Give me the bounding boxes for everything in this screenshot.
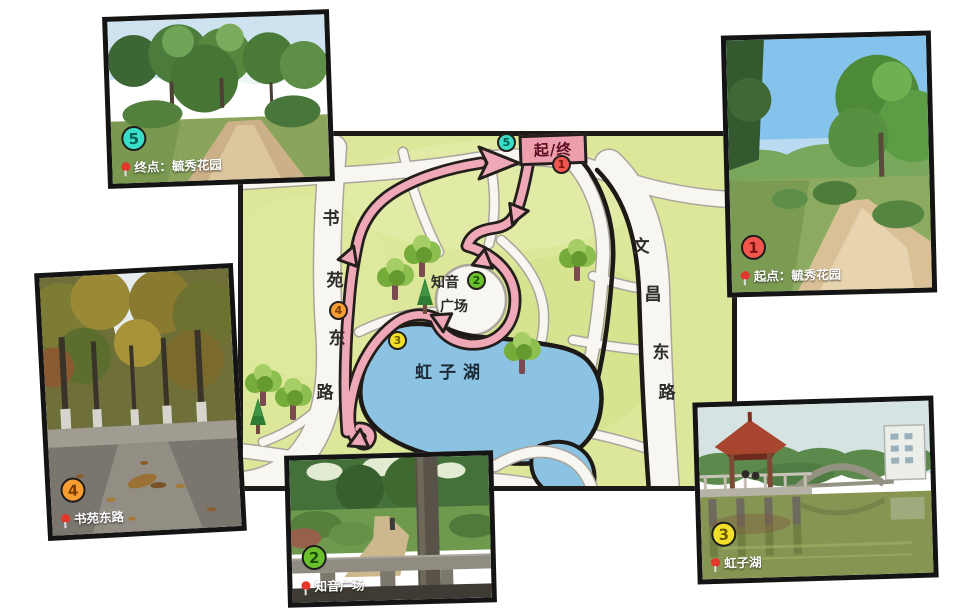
roof-finial	[748, 412, 752, 422]
map-marker-4: 4	[329, 301, 348, 320]
map-marker-5: 5	[497, 133, 516, 152]
pavilion-post	[767, 453, 773, 487]
right-road-char: 东	[651, 338, 671, 363]
photo-caption: 书苑东路	[61, 506, 125, 528]
photo-caption: 虹子湖	[711, 552, 762, 572]
marker-number: 4	[335, 304, 343, 317]
left-road-char: 苑	[325, 266, 345, 291]
pin-icon	[711, 558, 720, 567]
marker-number: 2	[309, 548, 320, 566]
photo-shuyuan-road: 4 书苑东路	[34, 263, 247, 541]
caption-text: 起点：毓秀花园	[753, 264, 841, 285]
caption-text: 虹子湖	[724, 552, 762, 572]
caption-text: 知音广场	[314, 575, 364, 595]
building	[884, 425, 926, 480]
map-marker-2: 2	[467, 271, 486, 290]
marker-number: 1	[748, 238, 759, 256]
marker-number: 5	[128, 129, 139, 147]
photo-startpoint: 1 起点：毓秀花园	[721, 30, 937, 297]
photo-zhiyin-square: 2 知音广场	[284, 450, 497, 607]
lake-label: 虹子湖	[415, 358, 487, 383]
caption-text: 终点：毓秀花园	[134, 154, 222, 176]
left-road-char: 路	[315, 378, 335, 403]
photo-endpoint: 5 终点：毓秀花园	[102, 9, 335, 189]
pin-icon	[741, 271, 750, 280]
pin-icon	[301, 581, 310, 590]
marker-number: 3	[718, 525, 729, 543]
right-road-char: 文	[631, 232, 651, 257]
left-road-char: 东	[327, 324, 347, 349]
marker-number: 4	[67, 481, 78, 500]
photo-hongzi-lake: 3 虹子湖	[692, 395, 938, 584]
right-road-char: 昌	[643, 280, 663, 305]
map-marker-1: 1	[552, 155, 571, 174]
plaza-label-line2: 广场	[440, 296, 468, 316]
route-infographic: 起/终 书 苑 东 路 文 昌 东 路 知音 广场 虹子湖 5 1 2 3 4	[0, 0, 960, 612]
photo-caption: 知音广场	[301, 575, 364, 596]
plaza-label-line1: 知音	[431, 272, 459, 292]
pin-icon	[61, 514, 70, 523]
photo-caption: 终点：毓秀花园	[121, 154, 222, 176]
pavilion-post	[729, 454, 735, 488]
right-road-char: 路	[657, 378, 677, 403]
marker-number: 3	[394, 334, 402, 347]
caption-text: 书苑东路	[73, 506, 124, 528]
marker-number: 5	[503, 136, 511, 149]
map-drawing	[243, 136, 732, 486]
marker-number: 1	[558, 158, 566, 171]
pin-icon	[121, 162, 130, 171]
hand-drawn-map: 起/终 书 苑 东 路 文 昌 东 路 知音 广场 虹子湖 5 1 2 3 4	[238, 131, 737, 491]
left-road-char: 书	[321, 204, 341, 229]
map-marker-3: 3	[388, 331, 407, 350]
walking-person	[390, 518, 395, 530]
photo-caption: 起点：毓秀花园	[740, 264, 841, 285]
marker-number: 2	[473, 274, 481, 287]
